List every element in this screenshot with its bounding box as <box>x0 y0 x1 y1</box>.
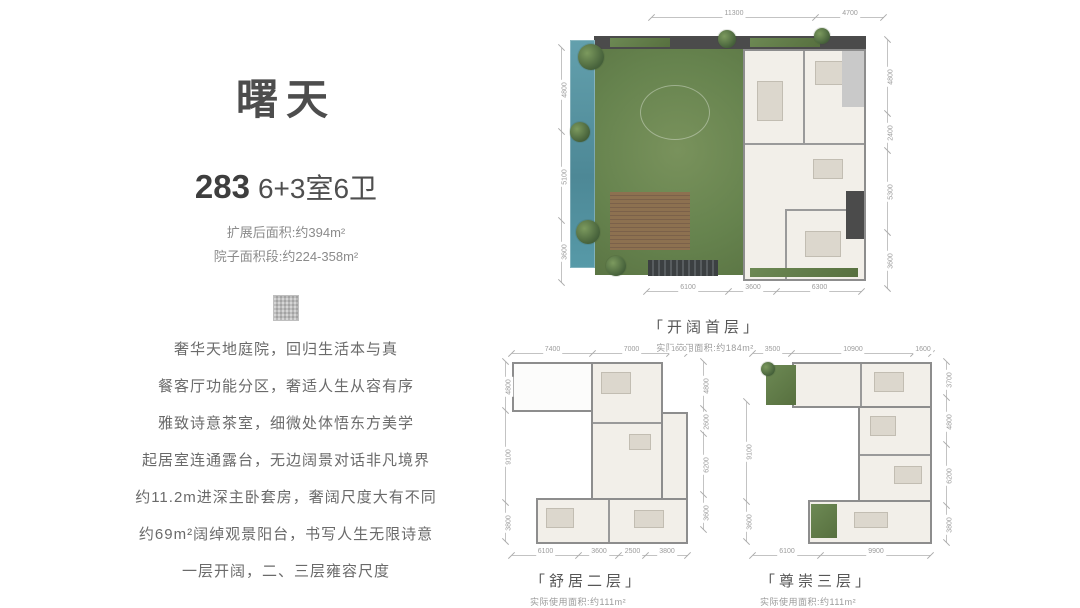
dimension-label: 1600 <box>669 345 689 354</box>
floorplan-second-floor: 7400 7000 1600 4800 9100 3800 4800 2600 … <box>498 338 713 598</box>
second-floor-label: 「舒居二层」 实际使用面积:约111m² <box>530 570 730 608</box>
dimension-label: 6100 <box>678 283 698 292</box>
wood-deck <box>610 192 690 250</box>
second-floor-graphic <box>512 362 688 544</box>
dimension-label: 5100 <box>560 167 569 187</box>
plan-name: 「舒居二层」 <box>530 570 730 591</box>
unit-spec: 2836+3室6卫 <box>118 167 454 207</box>
dimension-line: 6100 3600 2500 3800 <box>512 548 688 560</box>
third-floor-graphic <box>753 362 932 544</box>
feature-line: 一层开阔，二、三层雍容尺度 <box>118 553 454 590</box>
third-floor-label: 「尊崇三层」 实际使用面积:约111m² <box>760 570 960 608</box>
dimension-label: 3600 <box>886 251 895 271</box>
lower-rooms <box>536 498 688 544</box>
dimension-label: 4800 <box>702 376 711 396</box>
feature-line: 约69m²阔绰观景阳台，书写人生无限诗意 <box>118 516 454 553</box>
building <box>743 49 866 281</box>
feature-line: 奢华天地庭院，回归生活本与真 <box>118 331 454 368</box>
dimension-label: 10900 <box>841 345 864 354</box>
info-panel: 曙天 2836+3室6卫 扩展后面积:约394m² 院子面积段:约224-358… <box>118 66 454 590</box>
dimension-line: 6100 3600 6300 <box>647 284 862 296</box>
dimension-label: 9100 <box>745 442 754 462</box>
dimension-label: 2600 <box>702 412 711 432</box>
dimension-label: 3600 <box>743 283 763 292</box>
dimension-label: 6300 <box>810 283 830 292</box>
tree-icon <box>761 362 775 376</box>
tree-icon <box>814 28 830 44</box>
floorplan-first-floor: 11300 4700 4800 5100 3600 4800 2400 5300… <box>552 8 897 308</box>
page-title: 曙天 <box>118 66 454 127</box>
dimension-line: 4800 9100 3800 <box>498 362 510 542</box>
dimension-label: 3600 <box>589 547 609 556</box>
dimension-label: 1600 <box>913 345 933 354</box>
tree-icon <box>576 220 600 244</box>
dimension-label: 4800 <box>504 377 513 397</box>
dimension-label: 3800 <box>945 515 954 535</box>
upper-rooms <box>792 362 932 408</box>
unit-rooms: 6+3室6卫 <box>258 173 377 204</box>
feature-line: 约11.2m进深主卧套房，奢阔尺度大有不同 <box>118 479 454 516</box>
plan-name: 「开阔首层」 <box>570 316 840 337</box>
dimension-label: 7400 <box>543 345 563 354</box>
rooms-block <box>591 362 663 500</box>
garden-strip <box>750 268 858 277</box>
dimension-label: 2500 <box>623 547 643 556</box>
dimension-label: 4800 <box>560 80 569 100</box>
feature-line: 雅致诗意茶室，细微处体悟东方美学 <box>118 405 454 442</box>
feature-list: 奢华天地庭院，回归生活本与真 餐客厅功能分区，奢适人生从容有序 雅致诗意茶室，细… <box>118 331 454 590</box>
planter <box>811 504 837 538</box>
terrace <box>512 362 593 412</box>
dimension-label: 3800 <box>504 513 513 533</box>
dimension-line: 4800 2600 6200 3600 <box>696 362 708 530</box>
dimension-line: 4800 5100 3600 <box>554 48 566 283</box>
dimension-label: 5300 <box>886 182 895 202</box>
dimension-label: 6200 <box>702 455 711 475</box>
dimension-label: 3800 <box>657 547 677 556</box>
dimension-label: 3600 <box>702 503 711 523</box>
dimension-line: 3500 10900 1600 <box>753 346 932 358</box>
plan-area: 实际使用面积:约111m² <box>760 595 960 608</box>
floorplan-third-floor: 3500 10900 1600 9100 3600 3700 4800 6200… <box>735 338 970 598</box>
dimension-label: 4800 <box>886 67 895 87</box>
yard-area: 院子面积段:约224-358m² <box>118 245 454 269</box>
feature-line: 起居室连通露台，无边阔景对话非凡境界 <box>118 442 454 479</box>
page: 曙天 2836+3室6卫 扩展后面积:约394m² 院子面积段:约224-358… <box>0 0 1080 608</box>
tree-icon <box>606 256 626 276</box>
dimension-label: 4700 <box>840 9 860 18</box>
dimension-label: 3600 <box>560 242 569 262</box>
dimension-line: 11300 4700 <box>652 10 884 22</box>
dimension-label: 9100 <box>504 447 513 467</box>
roof-hedge <box>610 38 670 47</box>
pergola-deck <box>648 260 718 276</box>
dimension-label: 6100 <box>536 547 556 556</box>
plan-name: 「尊崇三层」 <box>760 570 960 591</box>
dimension-line: 9100 3600 <box>739 402 751 542</box>
tree-icon <box>718 30 736 48</box>
dimension-label: 2400 <box>886 123 895 143</box>
dimension-label: 3500 <box>763 345 783 354</box>
dimension-line: 4800 2400 5300 3600 <box>880 40 892 289</box>
area-details: 扩展后面积:约394m² 院子面积段:约224-358m² <box>118 221 454 269</box>
dimension-label: 7000 <box>622 345 642 354</box>
rooms-block <box>858 406 932 502</box>
dimension-line: 3700 4800 6200 3800 <box>939 362 951 543</box>
feature-line: 餐客厅功能分区，奢适人生从容有序 <box>118 368 454 405</box>
dimension-label: 4800 <box>945 412 954 432</box>
first-floor-graphic <box>570 30 870 278</box>
lawn-path <box>640 85 710 140</box>
dimension-label: 6200 <box>945 466 954 486</box>
dimension-label: 3600 <box>745 512 754 532</box>
dimension-line: 6100 9900 <box>753 548 931 560</box>
plan-area: 实际使用面积:约111m² <box>530 595 730 608</box>
tree-icon <box>570 122 590 142</box>
expanded-area: 扩展后面积:约394m² <box>118 221 454 245</box>
dimension-label: 11300 <box>723 9 746 18</box>
unit-area-number: 283 <box>195 168 250 205</box>
tree-icon <box>578 44 604 70</box>
dimension-label: 9900 <box>866 547 886 556</box>
dimension-line: 7400 7000 1600 <box>512 346 688 358</box>
dimension-label: 6100 <box>777 547 797 556</box>
roof-hedge <box>750 38 820 47</box>
seal-icon <box>273 295 299 321</box>
side-room <box>661 412 688 500</box>
dimension-label: 3700 <box>945 370 954 390</box>
